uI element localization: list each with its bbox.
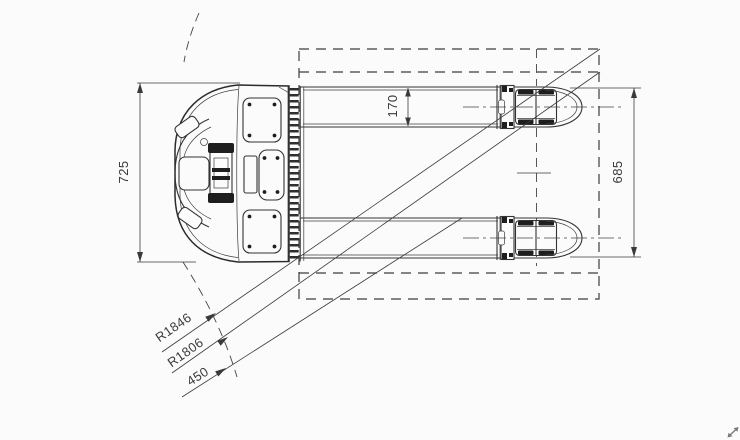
pallet-truck-top-view-drawing: 725 170 685 R1846 R1806 450: [0, 0, 740, 440]
platform-pad-top: [243, 98, 281, 142]
dimension-label-725: 725: [116, 161, 131, 184]
dimension-label-685: 685: [610, 161, 625, 184]
truck-body: [173, 85, 303, 262]
technical-drawing-canvas: 725 170 685 R1846 R1806 450: [0, 0, 740, 440]
resize-arrow-icon[interactable]: [728, 427, 739, 438]
dimension-label-450: 450: [184, 364, 211, 389]
platform-pad-middle: [244, 150, 284, 200]
fork-carriage-strip: [288, 86, 304, 262]
platform-pad-bottom: [243, 210, 281, 253]
dimension-fork-width: 170: [385, 88, 411, 127]
dimension-label-r1846: R1846: [153, 310, 195, 345]
dimension-label-170: 170: [385, 95, 400, 118]
